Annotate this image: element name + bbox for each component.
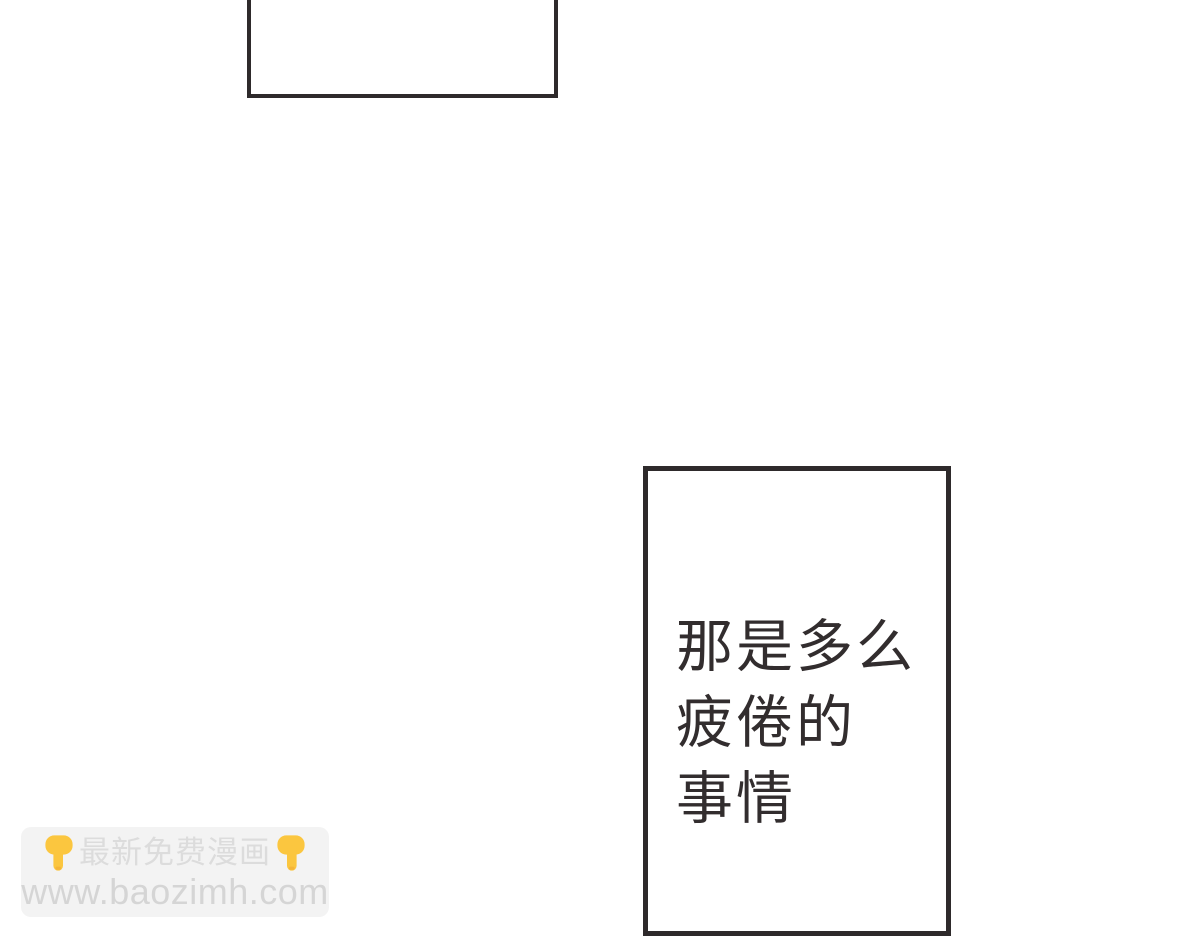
speech-text: 那是多么 疲倦的 事情	[648, 471, 946, 837]
comic-page: 那是多么 疲倦的 事情 最新免费漫画	[0, 0, 1200, 937]
speech-bubble-empty	[247, 0, 558, 98]
watermark-url: www.baozimh.com	[21, 872, 329, 912]
speech-line-1: 那是多么	[676, 609, 938, 685]
pointing-down-hand-icon	[275, 834, 307, 872]
speech-line-2: 疲倦的	[676, 685, 938, 761]
speech-bubble-main: 那是多么 疲倦的 事情	[643, 466, 951, 936]
watermark-title: 最新免费漫画	[79, 835, 271, 871]
watermark-title-row: 最新免费漫画	[43, 834, 307, 872]
watermark-badge: 最新免费漫画 www.baozimh.com	[21, 827, 329, 917]
speech-line-3: 事情	[676, 761, 938, 837]
pointing-down-hand-icon	[43, 834, 75, 872]
